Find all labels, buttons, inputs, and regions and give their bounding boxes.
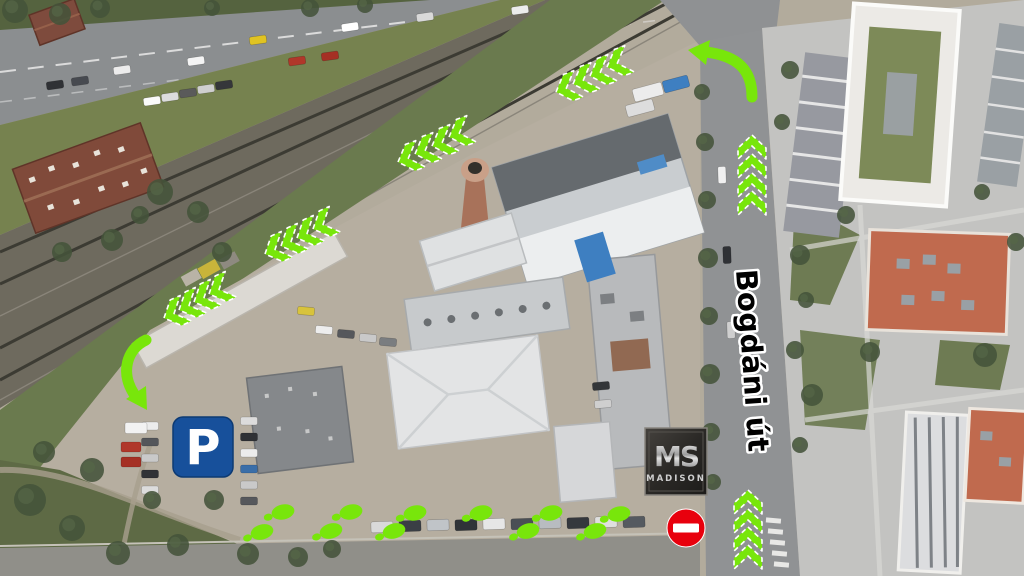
parking-sign: P xyxy=(173,417,233,477)
parking-sign-letter: P xyxy=(185,420,220,476)
madison-logo: MS MADISON xyxy=(645,428,707,495)
building-red-roof-east xyxy=(866,230,1009,335)
aerial-route-map: Bogdáni út P MS MADISON xyxy=(0,0,1024,576)
residential-district xyxy=(762,0,1024,576)
aerial-photo-background xyxy=(0,0,1024,576)
building-courtyard xyxy=(840,4,959,207)
madison-logo-wordmark: MADISON xyxy=(646,474,706,484)
madison-logo-initials: MS xyxy=(654,440,699,473)
chimney xyxy=(461,158,489,228)
no-entry-sign xyxy=(667,509,705,547)
